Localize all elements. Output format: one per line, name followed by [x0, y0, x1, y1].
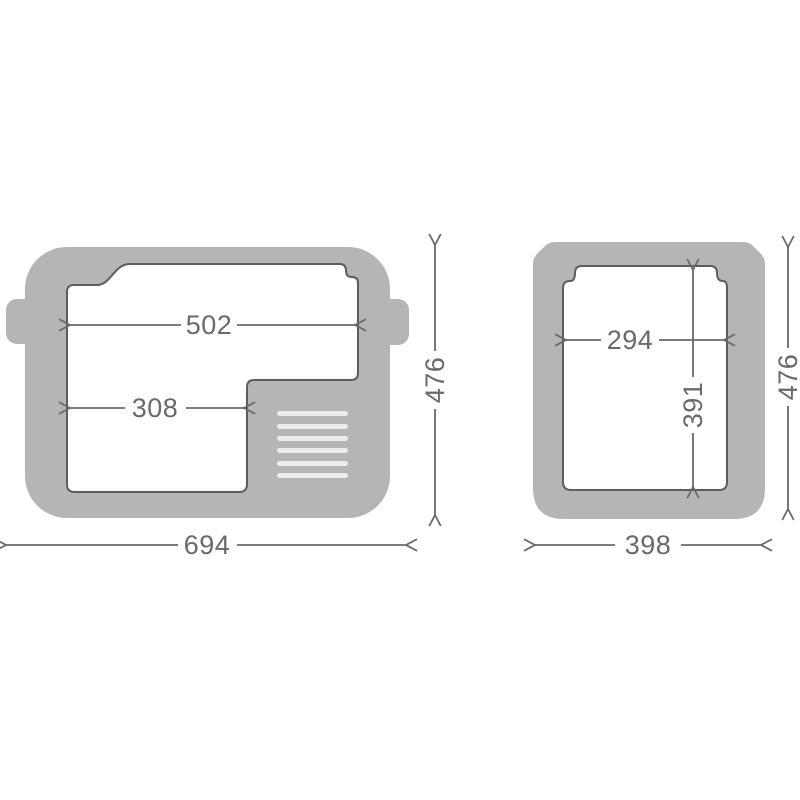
vent-slat	[277, 424, 348, 429]
dim-label-476-side: 476	[773, 354, 800, 401]
dim-label-391: 391	[678, 382, 708, 429]
vent-slat	[277, 461, 348, 466]
dim-label-308: 308	[132, 393, 179, 423]
dim-label-502: 502	[186, 310, 233, 340]
dim-side-overall-height: 476	[773, 247, 800, 509]
vent-slat	[277, 411, 348, 416]
dim-label-294: 294	[607, 325, 654, 355]
side-inner-cavity	[563, 266, 727, 490]
dim-front-overall-height: 476	[420, 245, 450, 515]
diagram-canvas: 502 308 694 476	[0, 0, 800, 800]
dim-label-476-front: 476	[420, 357, 450, 404]
vent-slat	[277, 436, 348, 441]
dimension-diagram: 502 308 694 476	[0, 0, 800, 800]
dim-label-694: 694	[184, 530, 231, 560]
front-view: 502 308 694 476	[6, 245, 450, 560]
dim-front-overall-width: 694	[6, 530, 406, 560]
side-view: 294 391 398 476	[533, 242, 800, 560]
vent-slat	[277, 473, 348, 478]
vent-slat	[277, 448, 348, 453]
dim-label-398: 398	[625, 530, 672, 560]
dim-side-overall-width: 398	[535, 530, 761, 560]
